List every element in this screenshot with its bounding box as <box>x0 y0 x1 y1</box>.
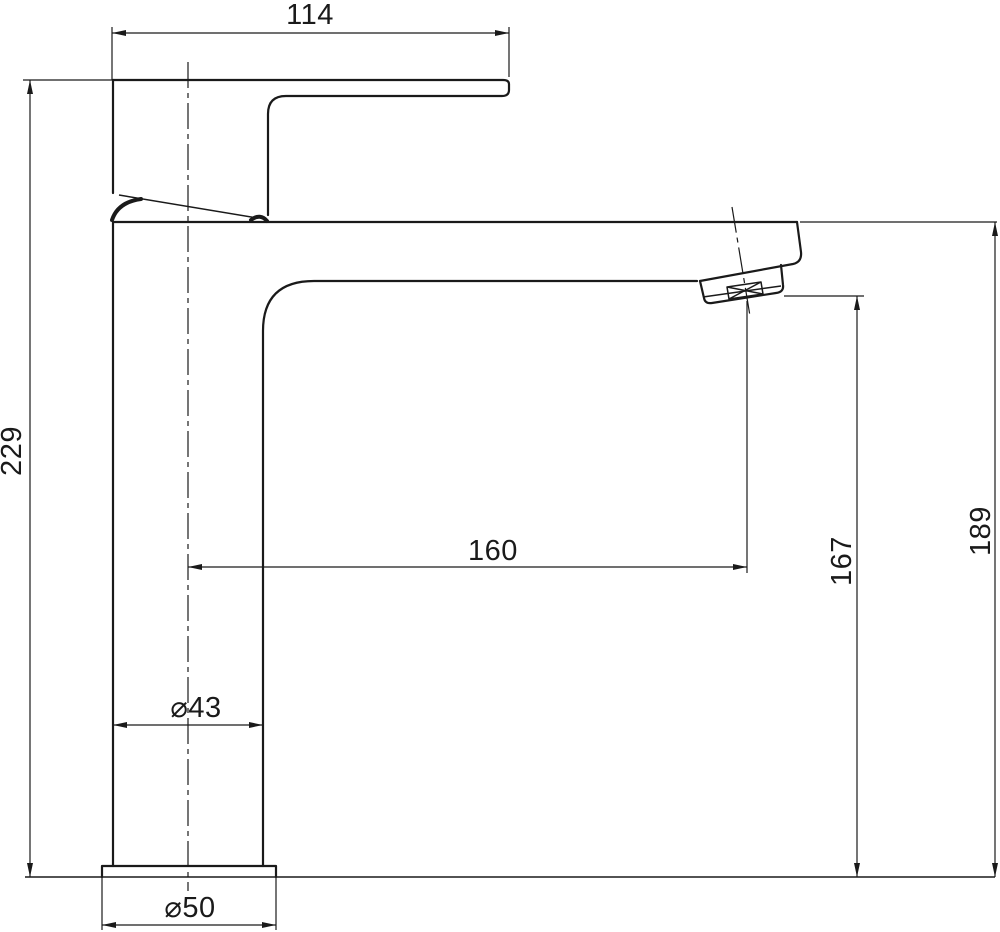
dim-label-spout-reach: 160 <box>468 535 518 567</box>
arrow-114-right <box>495 30 509 36</box>
body-right-and-spout-underside <box>263 281 697 866</box>
arrow-189-up <box>992 222 998 236</box>
arrow-189-down <box>992 863 998 877</box>
centerlines <box>188 62 750 891</box>
arrow-43-left <box>113 722 127 728</box>
arrow-167-up <box>854 296 860 310</box>
arrow-167-down <box>854 863 860 877</box>
base-flange <box>102 866 276 877</box>
handle-base-front-arc <box>112 199 141 220</box>
dim-label-outlet-height: 167 <box>826 536 858 586</box>
arrow-160-left <box>188 564 202 570</box>
arrow-43-right <box>249 722 263 728</box>
bold-accents <box>112 199 267 221</box>
spout-end-face <box>700 222 801 281</box>
arrow-114-left <box>112 30 126 36</box>
faucet-outline <box>102 80 801 877</box>
dim-label-handle-length: 114 <box>286 0 334 31</box>
detail-lines <box>119 195 781 299</box>
dim-label-total-height: 229 <box>0 426 28 476</box>
dimension-lines <box>23 27 997 930</box>
handle-lever <box>113 80 509 215</box>
arrowheads <box>27 30 998 928</box>
dim-label-deck-to-spout-top: 189 <box>965 506 997 556</box>
arrow-229-up <box>27 80 33 94</box>
arrow-50-right <box>262 922 276 928</box>
dim-label-body-diameter: ⌀43 <box>170 692 221 724</box>
arrow-50-left <box>102 922 116 928</box>
technical-drawing-sheet: 114 229 160 167 189 ⌀43 ⌀50 <box>0 0 1000 932</box>
dim-label-base-diameter: ⌀50 <box>164 892 215 924</box>
arrow-229-down <box>27 863 33 877</box>
faucet-dimension-drawing: 114 229 160 167 189 ⌀43 ⌀50 <box>0 0 1000 932</box>
handle-base-rear-arc <box>251 217 267 221</box>
arrow-160-right <box>733 564 747 570</box>
